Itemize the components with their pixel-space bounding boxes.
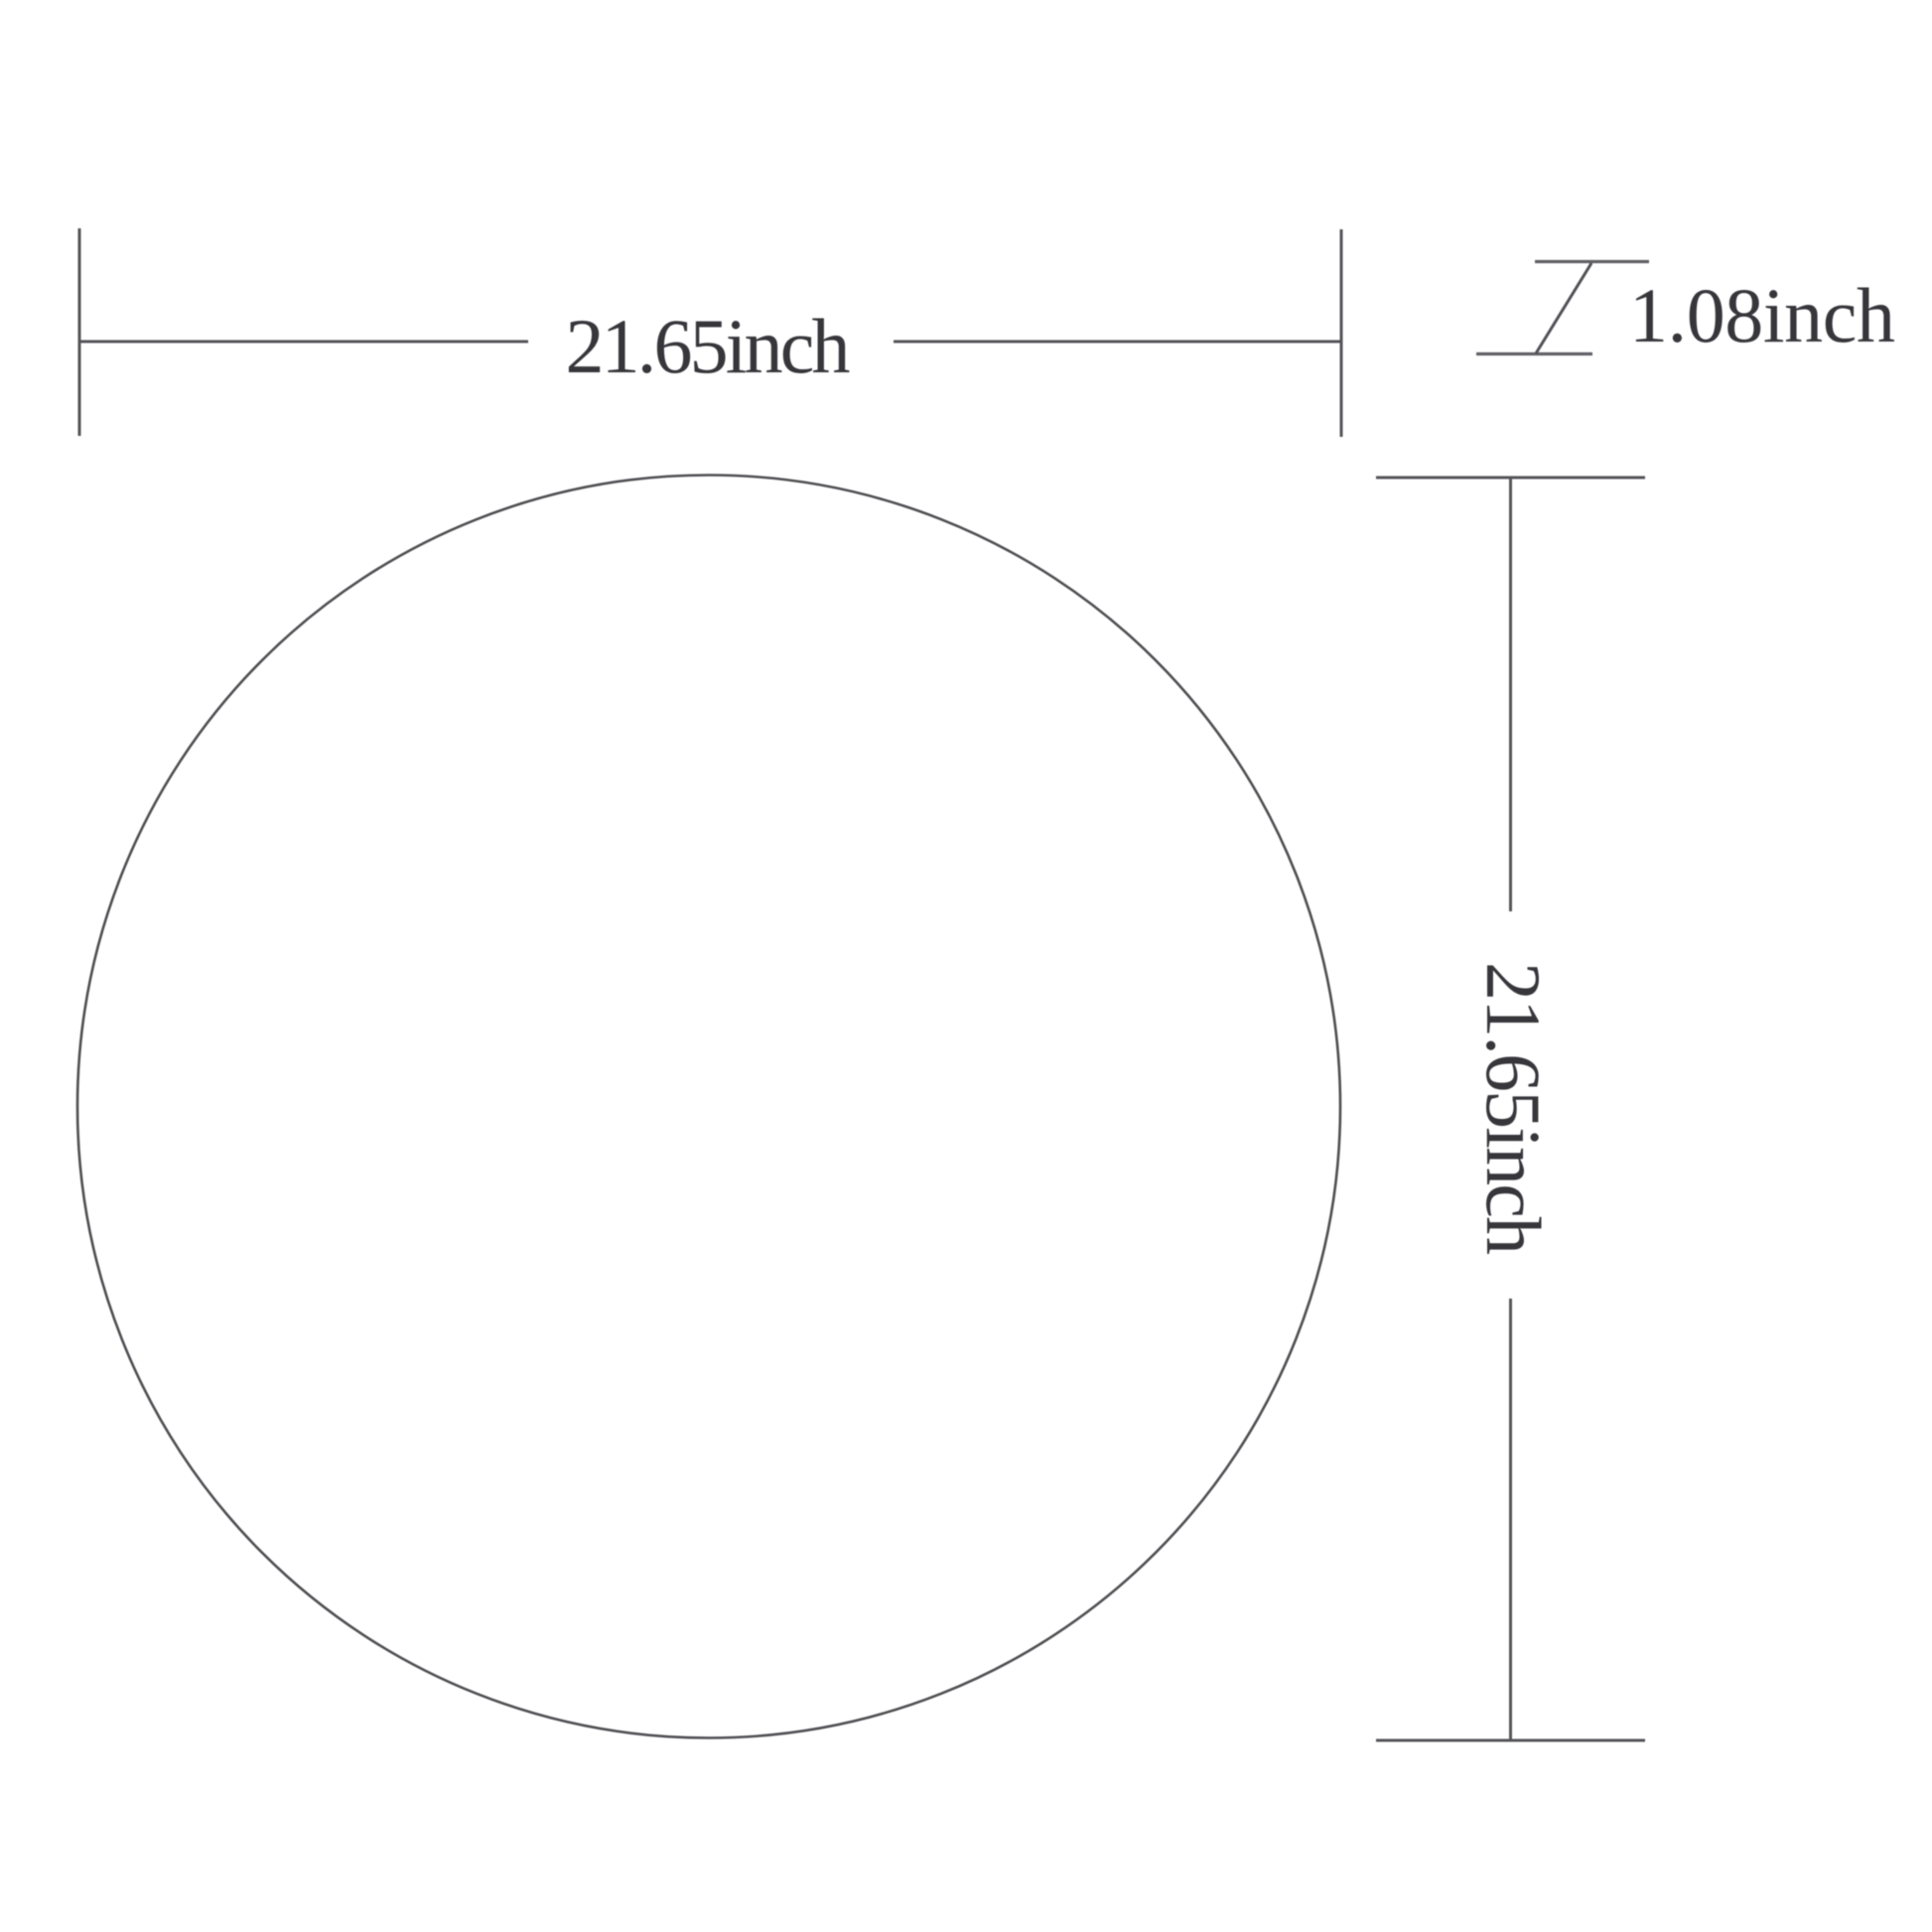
svg-text:21.65inch: 21.65inch (566, 303, 851, 389)
svg-text:1.08inch: 1.08inch (1629, 272, 1895, 358)
svg-text:21.65inch: 21.65inch (1470, 962, 1557, 1255)
